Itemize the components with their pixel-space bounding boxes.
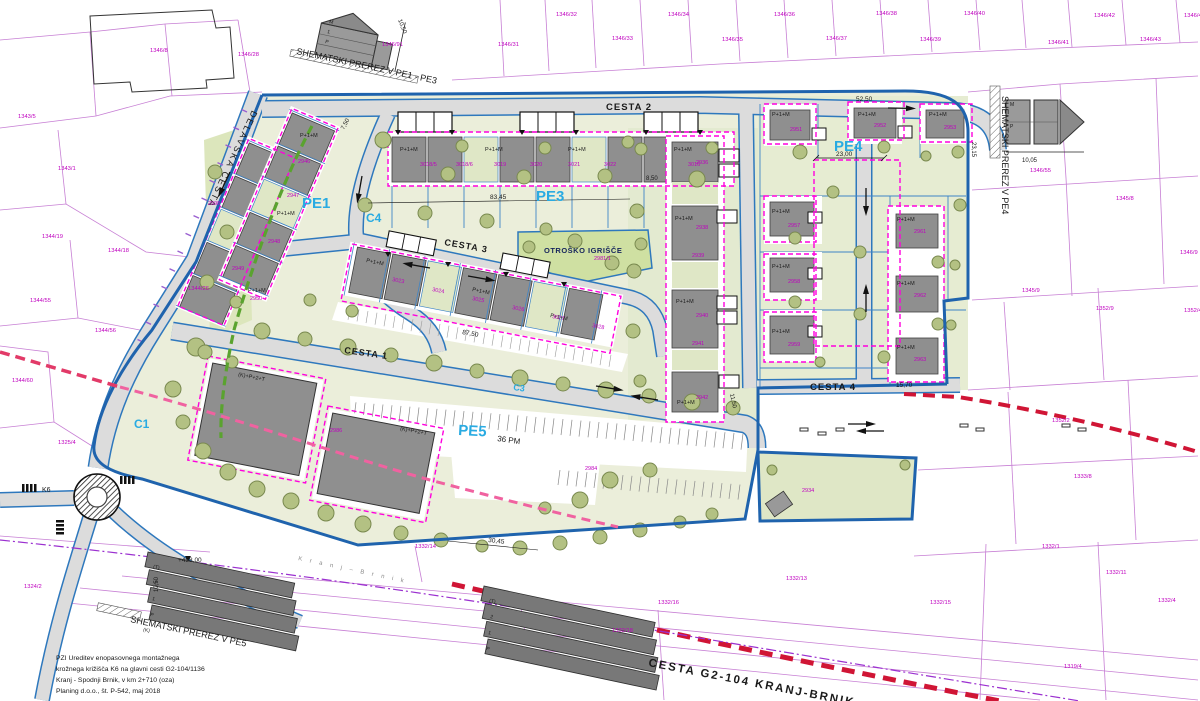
building-label: P+1+M: [897, 217, 915, 223]
building-label: P+1+M: [277, 211, 295, 217]
road-c3: C3: [513, 382, 526, 394]
parcel-number: 1332/16: [658, 600, 679, 606]
dim-1570: 15,70: [896, 382, 913, 389]
parcel-number: 2946: [298, 159, 310, 165]
parcel-number: 1352/9: [1096, 306, 1114, 312]
parcel-number: 2940: [696, 313, 708, 319]
site-plan-drawing: SHEMATSKI PREREZ V PE1 - PE3SHEMATSKI PR…: [0, 0, 1200, 701]
parcel-number: 1344/55: [30, 298, 51, 304]
building-label: P+1+M: [400, 147, 418, 153]
roundabout-k6: K6: [42, 487, 51, 494]
parcel-number: 1344/56: [95, 328, 116, 334]
parcel-number: 2951: [790, 127, 802, 133]
parcel-number: 2961: [914, 229, 926, 235]
building-label: P+1+M: [897, 281, 915, 287]
parcel-number: 1346/36: [774, 12, 795, 18]
site-plan-canvas: SHEMATSKI PREREZ V PE1 - PE3SHEMATSKI PR…: [0, 0, 1200, 701]
parcel-number: 2950: [250, 296, 262, 302]
parcel-number: 1346/91: [382, 42, 403, 48]
title-block-line-3: Kranj - Spodnji Brnik, v km 2+710 (oza): [56, 677, 174, 684]
parcel-number: 2952: [874, 123, 886, 129]
parcel-number: 1352/2: [1052, 418, 1070, 424]
road-c4: C4: [366, 211, 382, 225]
title-block-line-4: Planing d.o.o., št. P-542, maj 2018: [56, 688, 161, 695]
building-label: P+1+M: [858, 112, 876, 118]
title-block-line-2: krožnega križišča K6 na glavni cesti G2-…: [56, 666, 205, 673]
dim-2300: 23,00: [836, 151, 853, 158]
parcel-number: 1346/9: [1180, 250, 1198, 256]
parcel-number: 1346/55: [1030, 168, 1051, 174]
parcel-number: 3021: [568, 162, 580, 168]
dim-1005: 10,05: [1022, 158, 1038, 164]
parcel-number: 2953: [944, 125, 956, 131]
parcel-number: 2959: [788, 342, 800, 348]
zone-pe5: PE5: [458, 422, 487, 440]
parcel-number: 3018/5: [420, 162, 437, 168]
parcel-number: 2938: [696, 225, 708, 231]
building-label: P+1+M: [248, 288, 266, 294]
building-label: P+1+M: [929, 112, 947, 118]
parcel-number: 2957: [788, 223, 800, 229]
parcel-number: 2949: [232, 266, 244, 272]
parcel-number: 1346/43: [1140, 37, 1161, 43]
parcel-number: 1346/28: [238, 52, 259, 58]
parcel-number: 1345/9: [1022, 288, 1040, 294]
building-label: P+1+M: [675, 216, 693, 222]
parcel-number: 2984: [585, 466, 597, 472]
building-label: P+1+M: [568, 147, 586, 153]
parcel-number: 2963: [914, 357, 926, 363]
parcel-number: 1346/44: [1184, 13, 1200, 19]
parcel-number: 1346/41: [1048, 40, 1069, 46]
parcel-number: 1346/37: [826, 36, 847, 42]
parcel-number: 1346/39: [920, 37, 941, 43]
parcel-number: 1344/18: [108, 248, 129, 254]
playground-label: OTROŠKO IGRIŠČE: [544, 246, 622, 255]
parcel-number: 1344/19: [42, 234, 63, 240]
parcel-number: 1345/8: [1116, 196, 1134, 202]
parcel-number: 1346/32: [556, 12, 577, 18]
building-label: P+1+M: [897, 345, 915, 351]
parcel-number: 1352/4: [1184, 308, 1200, 314]
parcel-number: 2958: [788, 279, 800, 285]
title-block-line-1: PZI Ureditev enopasovnega montažnega: [56, 655, 180, 662]
parcel-number: 2986: [330, 428, 342, 434]
building-label: P+1+M: [772, 112, 790, 118]
section-title-pe4: SHEMATSKI PREREZ V PE4: [1000, 96, 1010, 214]
dim-5250: 52,50: [856, 96, 873, 103]
roundabout-k6: [74, 474, 120, 520]
parcel-number: 1332/11: [1106, 570, 1127, 576]
parcel-number: 2939: [692, 253, 704, 259]
parcel-number: 1333/8: [1074, 474, 1092, 480]
street-cesta-2: CESTA 2: [606, 102, 652, 113]
section-level: M: [1010, 102, 1014, 108]
parcel-number: 1332/13: [786, 576, 807, 582]
dim-850: 8,50: [646, 176, 658, 182]
parcel-number: 2941: [692, 341, 704, 347]
parcel-number: 1346/38: [876, 11, 897, 17]
parcel-number: 1344/26: [188, 286, 209, 292]
parcel-number: 1324/2: [24, 584, 42, 590]
parcel-number: 1346/33: [612, 36, 633, 42]
parcel-number: 3018/6: [456, 162, 473, 168]
parcel-number: 1343/5: [18, 114, 36, 120]
parcel-number: 1346/35: [722, 37, 743, 43]
building-label: P+1+M: [300, 133, 318, 139]
parcel-number: 1319/4: [1064, 664, 1083, 670]
parcel-number: 3022: [604, 162, 616, 168]
building-label: P+1+M: [772, 264, 790, 270]
parcel-number: 1332/1: [1042, 544, 1060, 550]
building-label: P+1+M: [772, 209, 790, 215]
parcel-number: 3020: [530, 162, 542, 168]
parcel-number: 3019: [494, 162, 506, 168]
parcel-number: 1332/14: [415, 544, 437, 550]
parcel-number: 1346/31: [498, 42, 519, 48]
dim-8345: 83,45: [490, 194, 507, 201]
parcel-number: 2962: [914, 293, 926, 299]
road-c1: C1: [134, 417, 150, 431]
parcel-number: 1332/4: [1158, 598, 1177, 604]
parcel-number: 1346/42: [1094, 13, 1115, 19]
parcel-number: 1344/60: [12, 378, 33, 384]
parcel-number: 1332/18: [612, 628, 633, 634]
elevation-458: +458,00: [178, 557, 202, 564]
parcel-number: 2998: [208, 201, 220, 207]
building-label: P+1+M: [676, 299, 694, 305]
building-label: P+1+M: [772, 329, 790, 335]
parcel-number: 1332/15: [930, 600, 951, 606]
building-label: P+1+M: [674, 147, 692, 153]
parcel-number: 1346/40: [964, 11, 985, 17]
parcel-number: 1325/4: [58, 440, 77, 446]
parcel-number: 2948: [268, 239, 280, 245]
parcel-number: 1346/34: [668, 12, 690, 18]
parcel-number: 1346/8: [150, 48, 168, 54]
building-label: P+1+M: [485, 147, 503, 153]
parcel-number: 1343/1: [58, 166, 76, 172]
street-cesta-4: CESTA 4: [810, 382, 856, 393]
building-label: P+1+M: [677, 400, 695, 406]
parcel-number: 2936: [696, 160, 708, 166]
parcel-number: 2981/1: [594, 256, 611, 262]
dim-2315: 23,15: [970, 142, 976, 158]
parcel-number: 2942: [696, 395, 708, 401]
zone-pe1: PE1: [302, 195, 330, 212]
parcel-number: 2947: [287, 193, 299, 199]
zone-pe3: PE3: [536, 188, 564, 205]
parcel-number: 2934: [802, 488, 814, 494]
